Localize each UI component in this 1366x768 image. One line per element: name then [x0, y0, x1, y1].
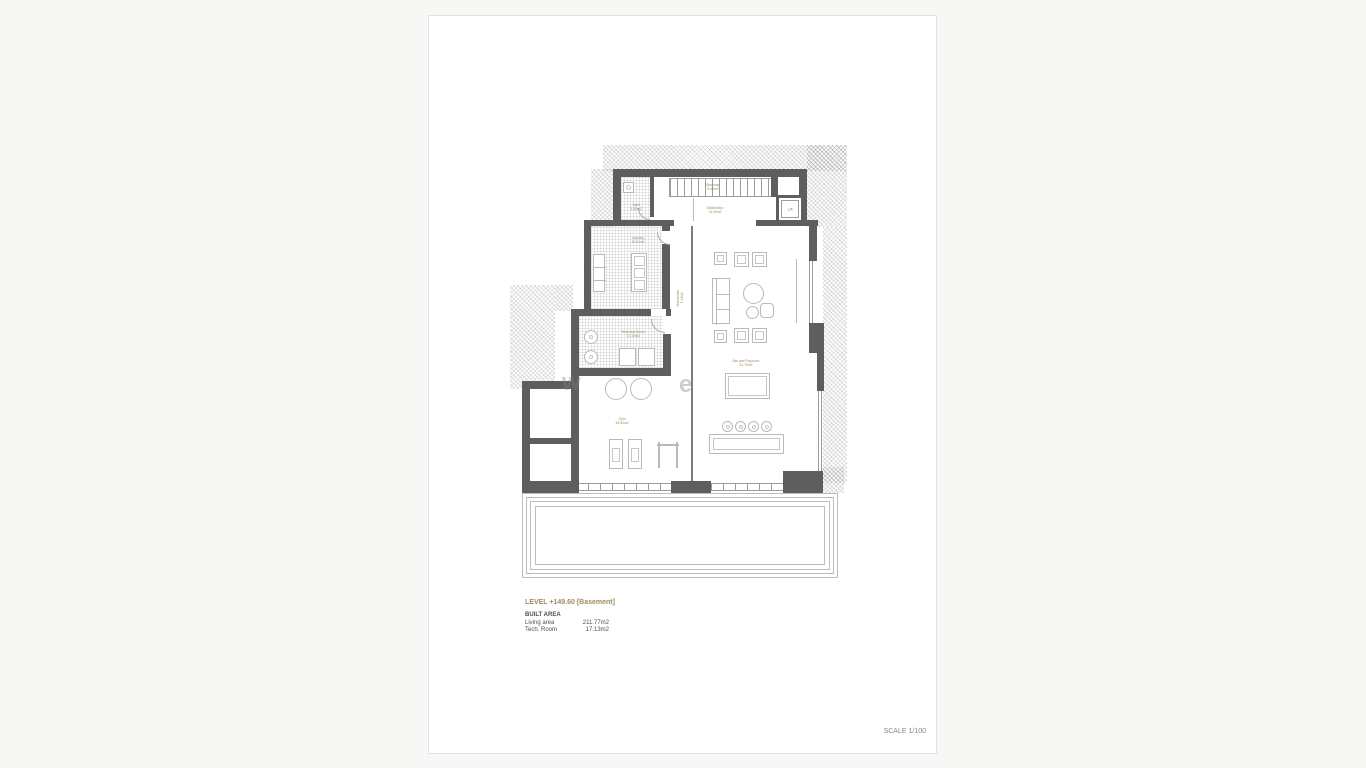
armchair-seat: [717, 255, 724, 262]
wall-tech-right: [663, 334, 671, 368]
legend-label: Tech. Room: [525, 627, 569, 633]
wall-tech-left: [571, 309, 579, 376]
window-sill-line: [796, 259, 797, 323]
armchair: [752, 328, 767, 343]
wall-tech-top: [573, 309, 651, 316]
wall-bottom-left-segment: [522, 481, 576, 493]
level-title: LEVEL +149.60 [Basement]: [525, 599, 615, 606]
wall-bottom-mid-segment: [671, 481, 711, 493]
wall-upper-band-left: [584, 220, 674, 226]
stool-center: [752, 425, 756, 429]
armchair-seat: [737, 331, 746, 340]
room-area: 17.13m2: [621, 334, 645, 338]
lift-label: Lift: [788, 207, 792, 211]
wall-toilet-divider: [650, 177, 654, 217]
watermark-letter: w: [562, 369, 581, 397]
bar-counter: [709, 434, 784, 454]
weight-rack-post: [676, 442, 678, 468]
room-area: 91.76m2: [733, 363, 760, 367]
cabinet-divider: [594, 280, 606, 281]
exercise-bench: [609, 439, 623, 469]
staircase-treads: [669, 178, 773, 197]
armchair: [734, 328, 749, 343]
bar-sliding-door-glazing: [711, 483, 783, 491]
legend-row-tech-room: Tech. Room 17.13m2: [525, 627, 609, 633]
exterior-hatch-bottom-right: [821, 467, 844, 493]
sofa: [712, 278, 730, 324]
armchair: [714, 252, 727, 265]
gym-round-equipment: [605, 378, 627, 400]
round-table: [743, 283, 764, 304]
pool-table-felt: [728, 376, 767, 396]
room-area: 10.01m2: [631, 240, 644, 244]
legend-value: 211.77m2: [569, 620, 609, 626]
legend-value: 17.13m2: [569, 627, 609, 633]
toilet-sink-basin: [626, 185, 631, 190]
dryer-unit: [634, 268, 645, 278]
armchair-seat: [737, 255, 746, 264]
wall-tech-bottom: [571, 368, 671, 376]
wall-laundry-left: [584, 220, 591, 309]
bar-stool: [761, 421, 772, 432]
stool-center: [765, 425, 769, 429]
armchair-seat: [755, 255, 764, 264]
watermark-letter: e: [679, 371, 692, 399]
laundry-appliance-stack: [631, 253, 647, 292]
exterior-hatch-left-mid: [510, 285, 555, 389]
wall-laundry-right-stub: [662, 226, 670, 231]
partition-gym-playroom: [691, 226, 693, 481]
wall-closet-left: [522, 389, 530, 493]
wall-right-upper: [809, 226, 817, 261]
wall-tech-top-stub: [666, 309, 671, 316]
drawing-sheet: Lift: [428, 15, 937, 754]
terrace-outline-4: [535, 506, 825, 565]
room-label-toilet: Toilet 3.50m2: [630, 203, 641, 211]
wall-right-mid: [809, 323, 824, 353]
exercise-bench: [628, 439, 642, 469]
armchair-seat: [717, 333, 724, 340]
room-label-laundry: Laundry 10.01m2: [631, 236, 644, 244]
lounge-chair: [760, 303, 774, 318]
screenshot-root: { "colors": { "wall": "#5e5e5e", "room_l…: [0, 0, 1366, 768]
wall-laundry-right: [662, 244, 670, 309]
exterior-hatch-right-upper: [807, 145, 847, 227]
tank-center-dot: [589, 335, 593, 339]
room-label-technical-room: Technical Room 17.13m2: [621, 330, 645, 338]
room-label-distribution-top: Distribution 11.04m2: [707, 206, 724, 214]
playroom-window: [809, 261, 813, 323]
lift-shaft: Lift: [776, 195, 804, 223]
legend-label: Living area: [525, 620, 569, 626]
sofa-cushion-line: [717, 309, 730, 310]
scale-label: SCALE 1/100: [849, 728, 926, 735]
room-area: 45.54m2: [615, 421, 628, 425]
stair-rail-line: [693, 198, 694, 221]
wall-top-left: [613, 169, 621, 225]
round-chair: [746, 306, 759, 319]
room-label-bar-playroom: Bar and Playroom 91.76m2: [733, 359, 760, 367]
legend-row-living-area: Living area 211.77m2: [525, 620, 609, 626]
laundry-unit: [634, 280, 645, 290]
sofa-cushion-line: [717, 294, 730, 295]
bench-seat: [612, 448, 620, 462]
gym-sliding-door-glazing: [576, 483, 671, 491]
lift-cab: Lift: [781, 200, 799, 218]
wall-bottom-right-block: [783, 471, 823, 493]
gym-round-equipment: [630, 378, 652, 400]
stool-center: [726, 425, 730, 429]
stool-center: [739, 425, 743, 429]
bar-stool: [722, 421, 733, 432]
wall-stairhall-right: [771, 177, 778, 197]
exterior-hatch-left-upper: [591, 169, 613, 227]
wall-top: [613, 169, 807, 177]
room-area: 3.50m2: [630, 207, 641, 211]
bar-stool: [748, 421, 759, 432]
room-label-staircase: Staircase 5.49m2: [706, 183, 720, 191]
built-area-heading: BUILT AREA: [525, 612, 561, 618]
armchair-seat: [755, 331, 764, 340]
room-label-distribution-mid: Distribution 7.14m2: [676, 290, 684, 307]
room-area: 7.14m2: [680, 290, 684, 307]
armchair: [752, 252, 767, 267]
tank-center-dot: [589, 355, 593, 359]
exterior-hatch-right-side: [823, 227, 847, 483]
armchair: [734, 252, 749, 267]
sofa-back-line: [716, 279, 717, 325]
mechanical-unit: [638, 348, 655, 366]
exterior-hatch-left-mid-upper: [555, 285, 573, 311]
room-area: 11.04m2: [707, 210, 724, 214]
toilet-sink: [623, 182, 634, 193]
wall-right-jut: [817, 353, 824, 391]
wall-closet-divider: [530, 438, 571, 444]
weight-rack-post: [658, 442, 660, 468]
washer-unit: [634, 256, 645, 266]
cabinet-divider: [594, 267, 606, 268]
armchair: [714, 330, 727, 343]
mechanical-unit: [619, 348, 636, 366]
boiler-tank: [584, 330, 598, 344]
bench-seat: [631, 448, 639, 462]
pool-table: [725, 373, 770, 399]
boiler-tank: [584, 350, 598, 364]
room-label-gym: Gym 45.54m2: [615, 417, 628, 425]
laundry-cabinets: [593, 254, 605, 292]
room-area: 5.49m2: [706, 187, 720, 191]
bar-counter-inner: [713, 438, 780, 450]
bar-stool: [735, 421, 746, 432]
